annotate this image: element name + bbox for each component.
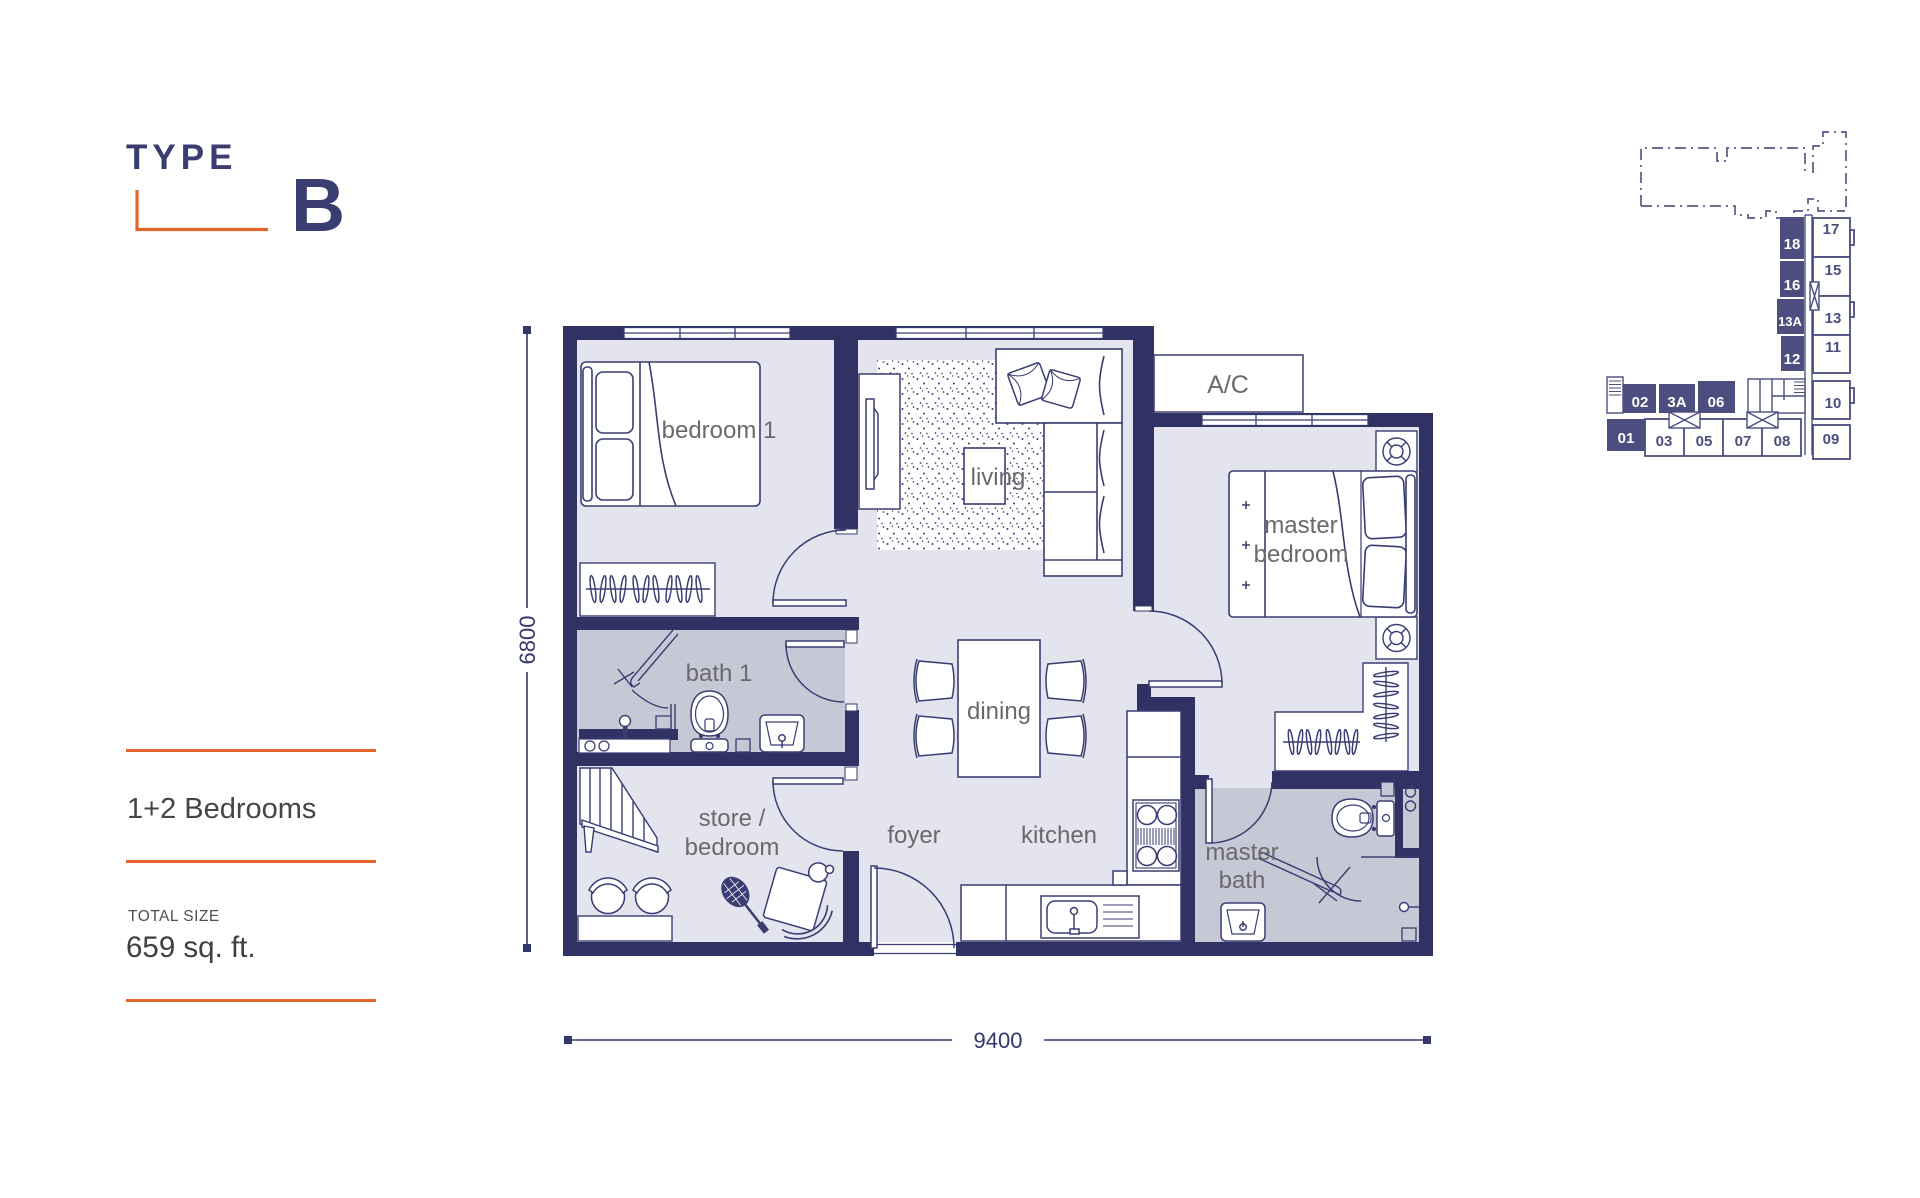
- svg-text:03: 03: [1656, 433, 1673, 450]
- svg-text:11: 11: [1825, 339, 1841, 356]
- svg-text:13: 13: [1825, 310, 1842, 327]
- svg-text:17: 17: [1823, 221, 1840, 238]
- svg-text:living: living: [971, 464, 1026, 491]
- svg-text:16: 16: [1784, 277, 1801, 294]
- svg-text:09: 09: [1823, 431, 1840, 448]
- svg-text:master: master: [1264, 512, 1337, 539]
- svg-text:bath: bath: [1219, 867, 1266, 894]
- svg-text:18: 18: [1784, 236, 1801, 253]
- svg-text:master: master: [1205, 839, 1278, 866]
- svg-text:15: 15: [1825, 262, 1842, 279]
- svg-text:6800: 6800: [515, 616, 540, 665]
- svg-text:10: 10: [1825, 395, 1842, 412]
- svg-text:12: 12: [1784, 351, 1801, 368]
- svg-text:02: 02: [1632, 394, 1649, 411]
- svg-text:bedroom 1: bedroom 1: [662, 417, 777, 444]
- svg-text:kitchen: kitchen: [1021, 822, 1097, 849]
- svg-text:1+2 Bedrooms: 1+2 Bedrooms: [127, 793, 316, 825]
- svg-text:TOTAL SIZE: TOTAL SIZE: [128, 908, 220, 925]
- svg-text:01: 01: [1618, 430, 1635, 447]
- svg-text:3A: 3A: [1667, 394, 1686, 411]
- svg-text:A/C: A/C: [1207, 371, 1249, 399]
- svg-text:bedroom: bedroom: [685, 834, 780, 861]
- svg-text:foyer: foyer: [887, 822, 940, 849]
- svg-text:bath 1: bath 1: [686, 660, 753, 687]
- svg-text:659 sq. ft.: 659 sq. ft.: [126, 931, 256, 964]
- svg-text:B: B: [291, 163, 345, 247]
- svg-text:08: 08: [1774, 433, 1791, 450]
- svg-text:9400: 9400: [974, 1028, 1023, 1053]
- svg-text:07: 07: [1735, 433, 1752, 450]
- svg-text:bedroom: bedroom: [1254, 541, 1349, 568]
- svg-text:store /: store /: [699, 805, 766, 832]
- svg-text:TYPE: TYPE: [126, 138, 237, 177]
- svg-text:06: 06: [1708, 394, 1725, 411]
- svg-text:13A: 13A: [1778, 314, 1802, 329]
- svg-text:05: 05: [1696, 433, 1713, 450]
- svg-text:dining: dining: [967, 698, 1031, 725]
